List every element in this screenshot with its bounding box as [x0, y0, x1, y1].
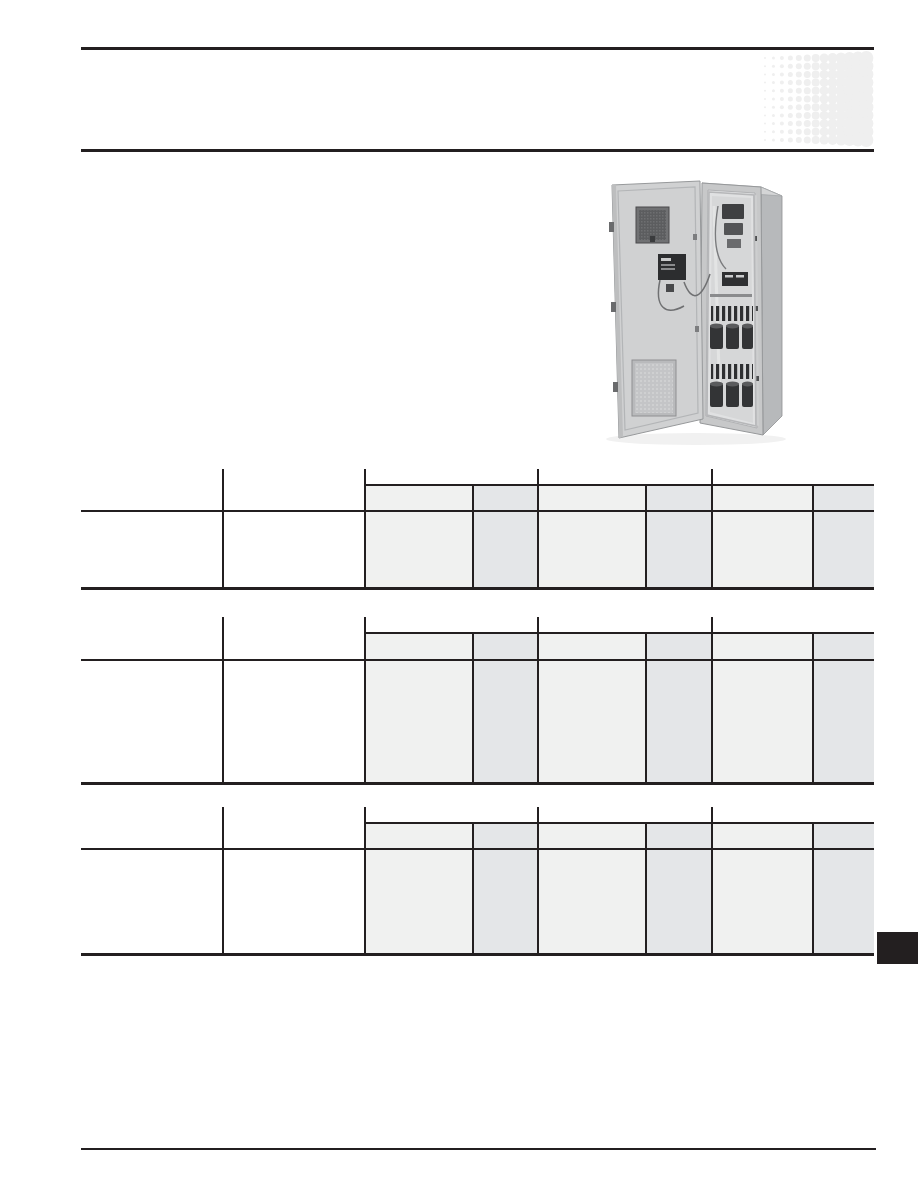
- table-light-column-fill: [711, 484, 812, 587]
- table-column-divider: [711, 617, 713, 782]
- table-subheader-top-rule: [364, 484, 874, 486]
- table-light-column-fill: [364, 632, 472, 782]
- table-light-column-fill: [364, 822, 472, 953]
- table-subheader-top-rule: [364, 822, 874, 824]
- table-subcolumn-divider: [812, 822, 814, 953]
- table-bottom-rule: [81, 782, 874, 785]
- table-column-divider: [222, 807, 224, 953]
- table-light-column-fill: [537, 632, 645, 782]
- table-column-divider: [222, 469, 224, 587]
- table-column-divider: [537, 617, 539, 782]
- footer-rule: [81, 1148, 876, 1150]
- table-column-divider: [711, 807, 713, 953]
- cabinet-product-photo: [596, 176, 788, 448]
- spec-table-1: [81, 469, 874, 590]
- table-dark-column-fill: [645, 632, 711, 782]
- table-dark-column-fill: [472, 822, 537, 953]
- document-page: [0, 0, 918, 1188]
- table-column-divider: [711, 469, 713, 587]
- page-edge-tab: [877, 932, 918, 964]
- table-subcolumn-divider: [812, 484, 814, 587]
- table-subcolumn-divider: [472, 632, 474, 782]
- table-light-column-fill: [364, 484, 472, 587]
- table-subcolumn-divider: [645, 484, 647, 587]
- table-dark-column-fill: [812, 484, 874, 587]
- table-light-column-fill: [537, 484, 645, 587]
- table-dark-column-fill: [645, 822, 711, 953]
- table-bottom-rule: [81, 587, 874, 590]
- table-dark-column-fill: [812, 822, 874, 953]
- table-light-column-fill: [711, 822, 812, 953]
- spec-table-3: [81, 807, 874, 956]
- table-subcolumn-divider: [645, 632, 647, 782]
- table-header-bottom-rule: [81, 848, 874, 850]
- table-column-divider: [537, 469, 539, 587]
- table-subcolumn-divider: [812, 632, 814, 782]
- table-subcolumn-divider: [472, 822, 474, 953]
- cabinet-open-door: [609, 181, 710, 438]
- table-light-column-fill: [537, 822, 645, 953]
- table-header-bottom-rule: [81, 510, 874, 512]
- table-light-column-fill: [711, 632, 812, 782]
- table-dark-column-fill: [472, 632, 537, 782]
- table-column-divider: [537, 807, 539, 953]
- table-subheader-top-rule: [364, 632, 874, 634]
- table-dark-column-fill: [645, 484, 711, 587]
- table-column-divider: [364, 617, 366, 782]
- table-column-divider: [364, 469, 366, 587]
- table-subcolumn-divider: [472, 484, 474, 587]
- table-column-divider: [222, 617, 224, 782]
- table-dark-column-fill: [812, 632, 874, 782]
- spec-table-2: [81, 617, 874, 785]
- table-dark-column-fill: [472, 484, 537, 587]
- halftone-dot-pattern: [755, 50, 880, 150]
- table-header-bottom-rule: [81, 659, 874, 661]
- table-subcolumn-divider: [645, 822, 647, 953]
- table-column-divider: [364, 807, 366, 953]
- table-bottom-rule: [81, 953, 874, 956]
